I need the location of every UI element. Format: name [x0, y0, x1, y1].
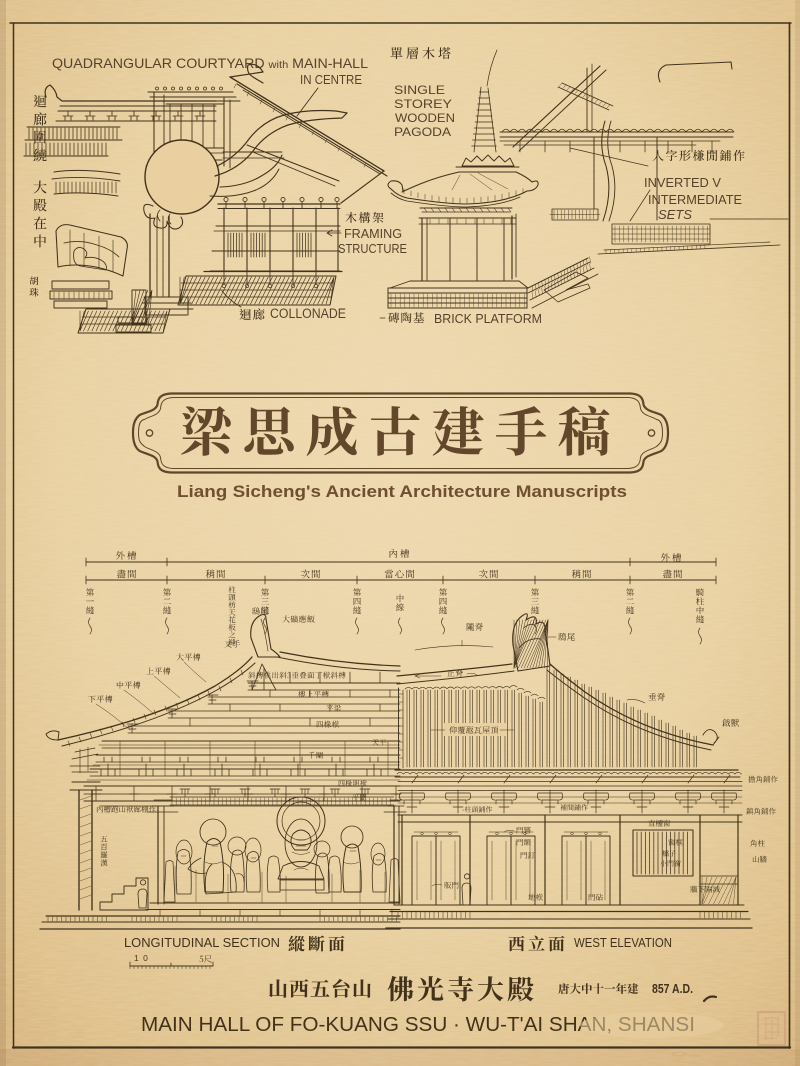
svg-text:SINGLE: SINGLE [394, 83, 445, 97]
svg-text:IN CENTRE: IN CENTRE [300, 72, 362, 87]
svg-text:SETS: SETS [658, 208, 693, 222]
svg-text:1 0: 1 0 [134, 953, 149, 963]
svg-text:PAGODA: PAGODA [394, 125, 451, 139]
svg-text:INVERTED V: INVERTED V [644, 176, 722, 190]
svg-text:WOODEN: WOODEN [395, 111, 455, 125]
svg-text:BRICK PLATFORM: BRICK PLATFORM [434, 311, 542, 326]
svg-text:STOREY: STOREY [394, 97, 452, 111]
svg-text:857 A.D.: 857 A.D. [652, 982, 693, 996]
svg-text:COLLONADE: COLLONADE [270, 306, 346, 321]
svg-text:FRAMING: FRAMING [344, 227, 402, 241]
svg-text:Liang Sicheng's Ancient Archit: Liang Sicheng's Ancient Architecture Man… [177, 483, 627, 501]
svg-text:STRUCTURE: STRUCTURE [338, 242, 407, 256]
svg-text:WEST ELEVATION: WEST ELEVATION [574, 936, 672, 950]
svg-text:QUADRANGULAR COURTYARD with M: QUADRANGULAR COURTYARD with MAIN-HALL [52, 56, 369, 71]
svg-text:INTERMEDIATE: INTERMEDIATE [648, 193, 742, 207]
svg-text:LONGITUDINAL SECTION: LONGITUDINAL SECTION [124, 936, 280, 950]
